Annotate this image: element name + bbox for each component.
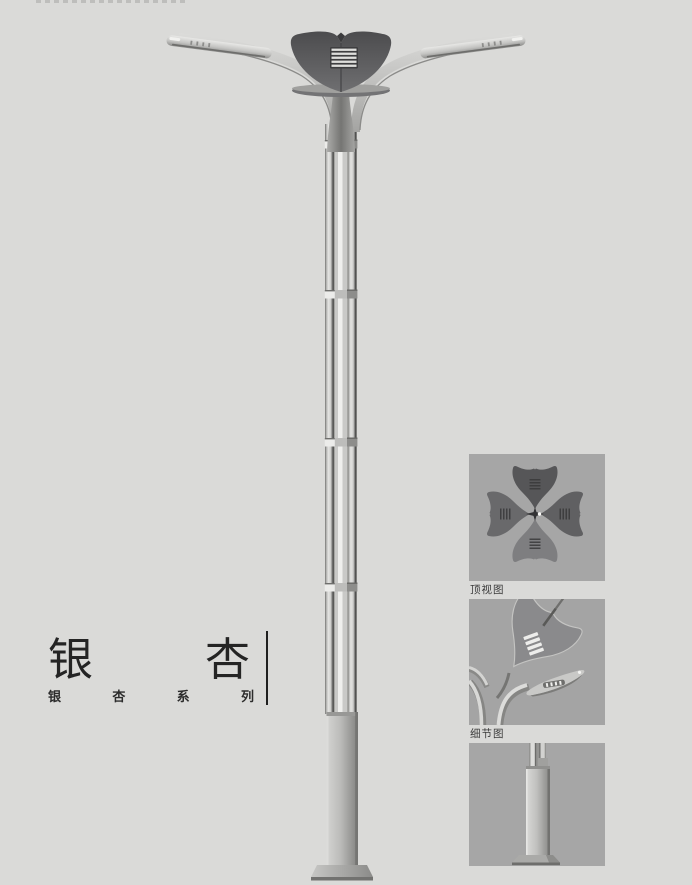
thumbnail-column: 顶视图 bbox=[469, 454, 605, 884]
detail-view-render bbox=[469, 599, 605, 725]
series-char: 系 bbox=[177, 690, 190, 703]
ginkgo-canopy bbox=[291, 32, 391, 152]
light-fixture-left bbox=[166, 35, 272, 59]
thumb-label-base-view bbox=[470, 869, 605, 881]
pole-shaft bbox=[325, 124, 357, 714]
product-title-char: 杏 bbox=[205, 637, 250, 682]
light-fixture-right bbox=[420, 35, 526, 59]
series-char: 银 bbox=[48, 690, 61, 703]
catalog-page: 银 杏 银 杏 系 列 bbox=[0, 0, 692, 885]
pole-base bbox=[311, 712, 373, 881]
title-divider-line bbox=[266, 631, 268, 705]
product-title-char: 银 bbox=[48, 637, 93, 682]
series-char: 列 bbox=[241, 690, 254, 703]
thumb-label-detail-view: 细节图 bbox=[470, 728, 605, 740]
canopy-vent-slats bbox=[330, 47, 358, 69]
top-view-render bbox=[469, 454, 605, 581]
thumb-label-top-view: 顶视图 bbox=[470, 584, 605, 596]
product-series-label: 银 杏 系 列 bbox=[48, 690, 254, 703]
base-view-render bbox=[469, 743, 605, 866]
product-title: 银 杏 bbox=[48, 637, 250, 682]
series-char: 杏 bbox=[112, 690, 125, 703]
